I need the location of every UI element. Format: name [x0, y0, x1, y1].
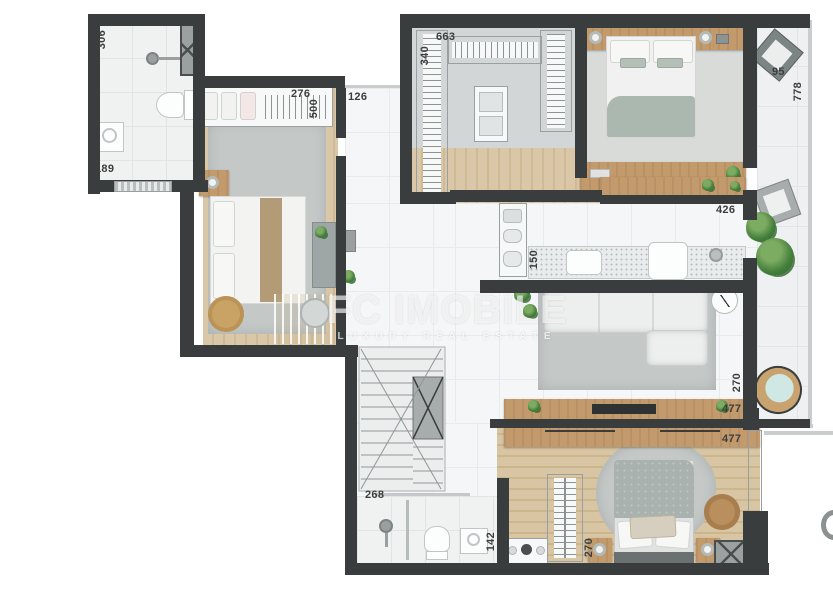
floor-plan: 306 189 276 500 126 663 340 95 778 426 1…	[0, 0, 833, 600]
entrance-mat	[114, 181, 172, 192]
toilet-top	[156, 92, 184, 118]
pouf-stool	[704, 494, 740, 530]
wall	[600, 195, 746, 204]
dim-270-living: 270	[732, 373, 743, 392]
wall	[497, 478, 509, 575]
bedside-lamp	[699, 31, 712, 44]
plant	[702, 179, 714, 191]
dim-500: 500	[309, 99, 320, 118]
wall	[400, 192, 456, 204]
dim-477-a: 477	[722, 404, 741, 415]
sofa-chaise	[646, 330, 708, 366]
balcony-railing-right	[808, 20, 812, 426]
accent-pillow	[620, 58, 646, 68]
bed-runner	[260, 198, 282, 302]
dim-426: 426	[716, 205, 735, 216]
pillow	[213, 253, 235, 299]
kitchen-sink	[566, 250, 602, 275]
wall	[743, 511, 768, 575]
wall	[450, 190, 602, 202]
linen	[503, 229, 522, 243]
wall	[400, 26, 412, 204]
dim-340: 340	[420, 46, 431, 65]
dim-95: 95	[772, 67, 785, 78]
wall	[193, 14, 205, 192]
folded-clothes	[221, 92, 237, 120]
wall	[743, 298, 757, 410]
sink-top-basin	[102, 128, 117, 143]
shower-stand	[385, 533, 388, 547]
shelf-groove	[660, 430, 720, 432]
dim-268: 268	[365, 490, 384, 501]
wall	[743, 408, 759, 430]
wall	[180, 192, 194, 357]
plant	[730, 181, 740, 191]
hall-doorline	[345, 85, 400, 88]
sink-bottom-basin	[467, 533, 480, 546]
dim-663: 663	[436, 32, 455, 43]
railing-extension	[764, 431, 833, 435]
bed-blanket	[607, 96, 695, 137]
bed-headboard	[614, 552, 694, 563]
shelf-item	[536, 546, 545, 555]
folded-clothes	[240, 92, 256, 120]
shower-head	[379, 519, 393, 533]
tv	[592, 404, 656, 414]
wall	[345, 563, 509, 575]
dim-778: 778	[793, 82, 804, 101]
wardrobe-rail-right	[540, 30, 572, 132]
shower-glass-panel	[406, 500, 409, 560]
closet-island-drawer	[479, 116, 503, 136]
clothes-rack-rail	[564, 478, 566, 558]
accent-pillow	[629, 515, 676, 539]
shelf-item	[508, 546, 517, 555]
armchair-round	[208, 296, 244, 332]
plant	[528, 400, 540, 412]
counter-lamp	[709, 248, 723, 262]
compass-partial	[821, 510, 833, 540]
side-railing-detail	[748, 430, 762, 514]
bedside-lamp	[701, 543, 714, 556]
toilet-bottom	[424, 526, 450, 552]
wardrobe-rail-top	[448, 36, 542, 64]
accent-pillow	[657, 58, 683, 68]
linen	[503, 209, 522, 223]
dim-189: 189	[95, 164, 114, 175]
wall	[743, 26, 757, 168]
wall	[88, 14, 205, 26]
wall	[743, 190, 757, 220]
wall	[490, 419, 810, 428]
wall	[575, 26, 587, 178]
bedside-lamp	[589, 31, 602, 44]
dim-150: 150	[529, 250, 540, 269]
hallway-floor	[345, 88, 405, 203]
plant-large	[756, 238, 794, 276]
shelf-groove	[545, 430, 615, 432]
staircase	[357, 343, 479, 495]
bed-blanket	[614, 460, 694, 518]
bath-shelf	[375, 493, 470, 496]
wall	[336, 88, 346, 138]
toilet-bottom-tank	[426, 551, 448, 560]
dim-142: 142	[486, 532, 497, 551]
closet-island-drawer	[479, 92, 503, 112]
wall	[345, 345, 357, 575]
dim-270-bed: 270	[584, 538, 595, 557]
wall	[180, 345, 358, 357]
pillow	[213, 201, 235, 247]
plant	[315, 226, 327, 238]
wall	[193, 76, 345, 88]
shelf-item	[521, 544, 532, 555]
linen	[503, 251, 522, 267]
fridge	[648, 242, 688, 280]
dim-477-b: 477	[722, 434, 741, 445]
watermark-tagline: LUXURY REAL ESTATE	[318, 331, 576, 342]
dim-306: 306	[97, 30, 108, 49]
dim-126: 126	[348, 92, 367, 103]
wall	[497, 563, 769, 575]
bedside-accessory	[716, 34, 729, 44]
watermark-logo: FC IMOBILE	[318, 288, 576, 333]
